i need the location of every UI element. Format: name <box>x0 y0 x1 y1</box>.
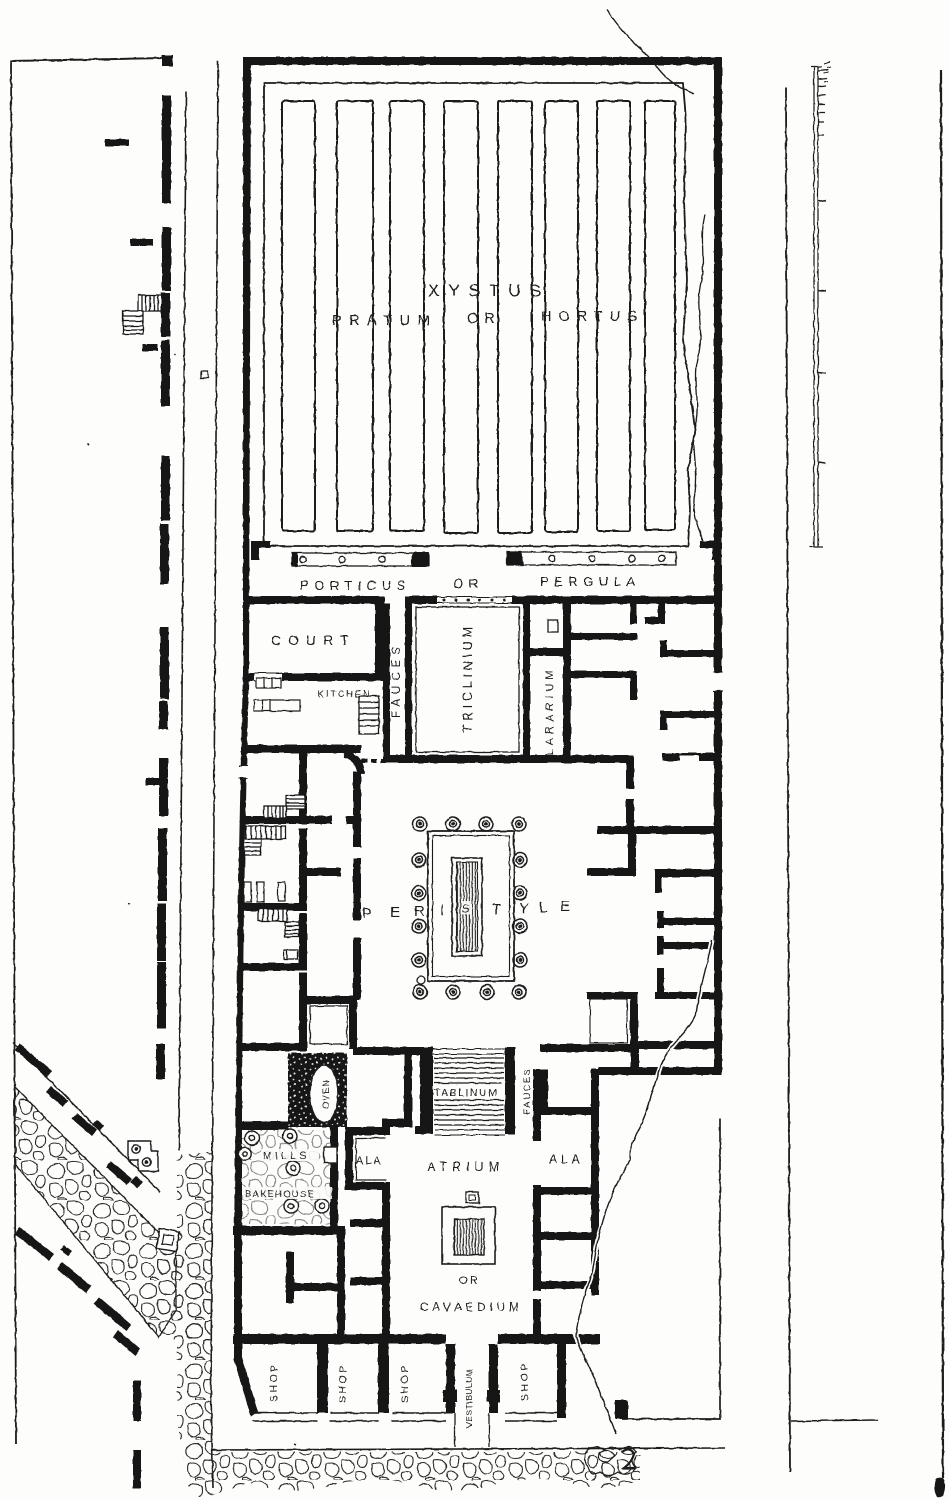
svg-text:SHOP: SHOP <box>337 1363 349 1403</box>
svg-text:ALA: ALA <box>356 1155 383 1167</box>
svg-text:P: P <box>362 905 372 922</box>
svg-text:FAUCES: FAUCES <box>391 642 403 718</box>
svg-text:TABLINUM: TABLINUM <box>434 1087 498 1099</box>
svg-text:T: T <box>492 901 501 918</box>
svg-text:E: E <box>390 904 400 921</box>
svg-text:LARARIUM: LARARIUM <box>544 667 556 756</box>
svg-text:I: I <box>440 902 444 919</box>
svg-text:SHOP: SHOP <box>399 1363 411 1403</box>
svg-text:OR: OR <box>453 576 484 591</box>
svg-text:ALA: ALA <box>549 1152 584 1166</box>
svg-text:PRATUM: PRATUM <box>332 313 437 329</box>
svg-text:Y: Y <box>519 900 529 917</box>
svg-text:OR: OR <box>459 1275 480 1287</box>
svg-text:MILLS: MILLS <box>263 1151 309 1162</box>
svg-text:XYSTUS: XYSTUS <box>428 281 550 300</box>
svg-text:COURT: COURT <box>271 632 356 648</box>
svg-text:SHOP: SHOP <box>268 1362 280 1402</box>
svg-text:TRICLINIUM: TRICLINIUM <box>460 623 475 732</box>
svg-text:PERGULA: PERGULA <box>540 574 641 589</box>
svg-text:PORTICUS: PORTICUS <box>300 578 411 593</box>
svg-text:S: S <box>462 903 469 915</box>
svg-text:OR: OR <box>467 311 501 327</box>
svg-text:OVEN: OVEN <box>321 1079 331 1109</box>
svg-text:VESTIBULUM: VESTIBULUM <box>464 1369 474 1428</box>
svg-text:BAKEHOUSE: BAKEHOUSE <box>245 1189 315 1200</box>
svg-text:HORTUS: HORTUS <box>541 309 644 325</box>
svg-text:L: L <box>539 899 547 916</box>
svg-text:ATRIUM: ATRIUM <box>427 1160 504 1174</box>
svg-text:SHOP: SHOP <box>519 1361 531 1401</box>
svg-text:FAUCES: FAUCES <box>522 1067 533 1114</box>
svg-text:R: R <box>414 903 425 920</box>
svg-text:E: E <box>560 898 570 915</box>
svg-text:CAVAEDIUM: CAVAEDIUM <box>420 1302 523 1314</box>
